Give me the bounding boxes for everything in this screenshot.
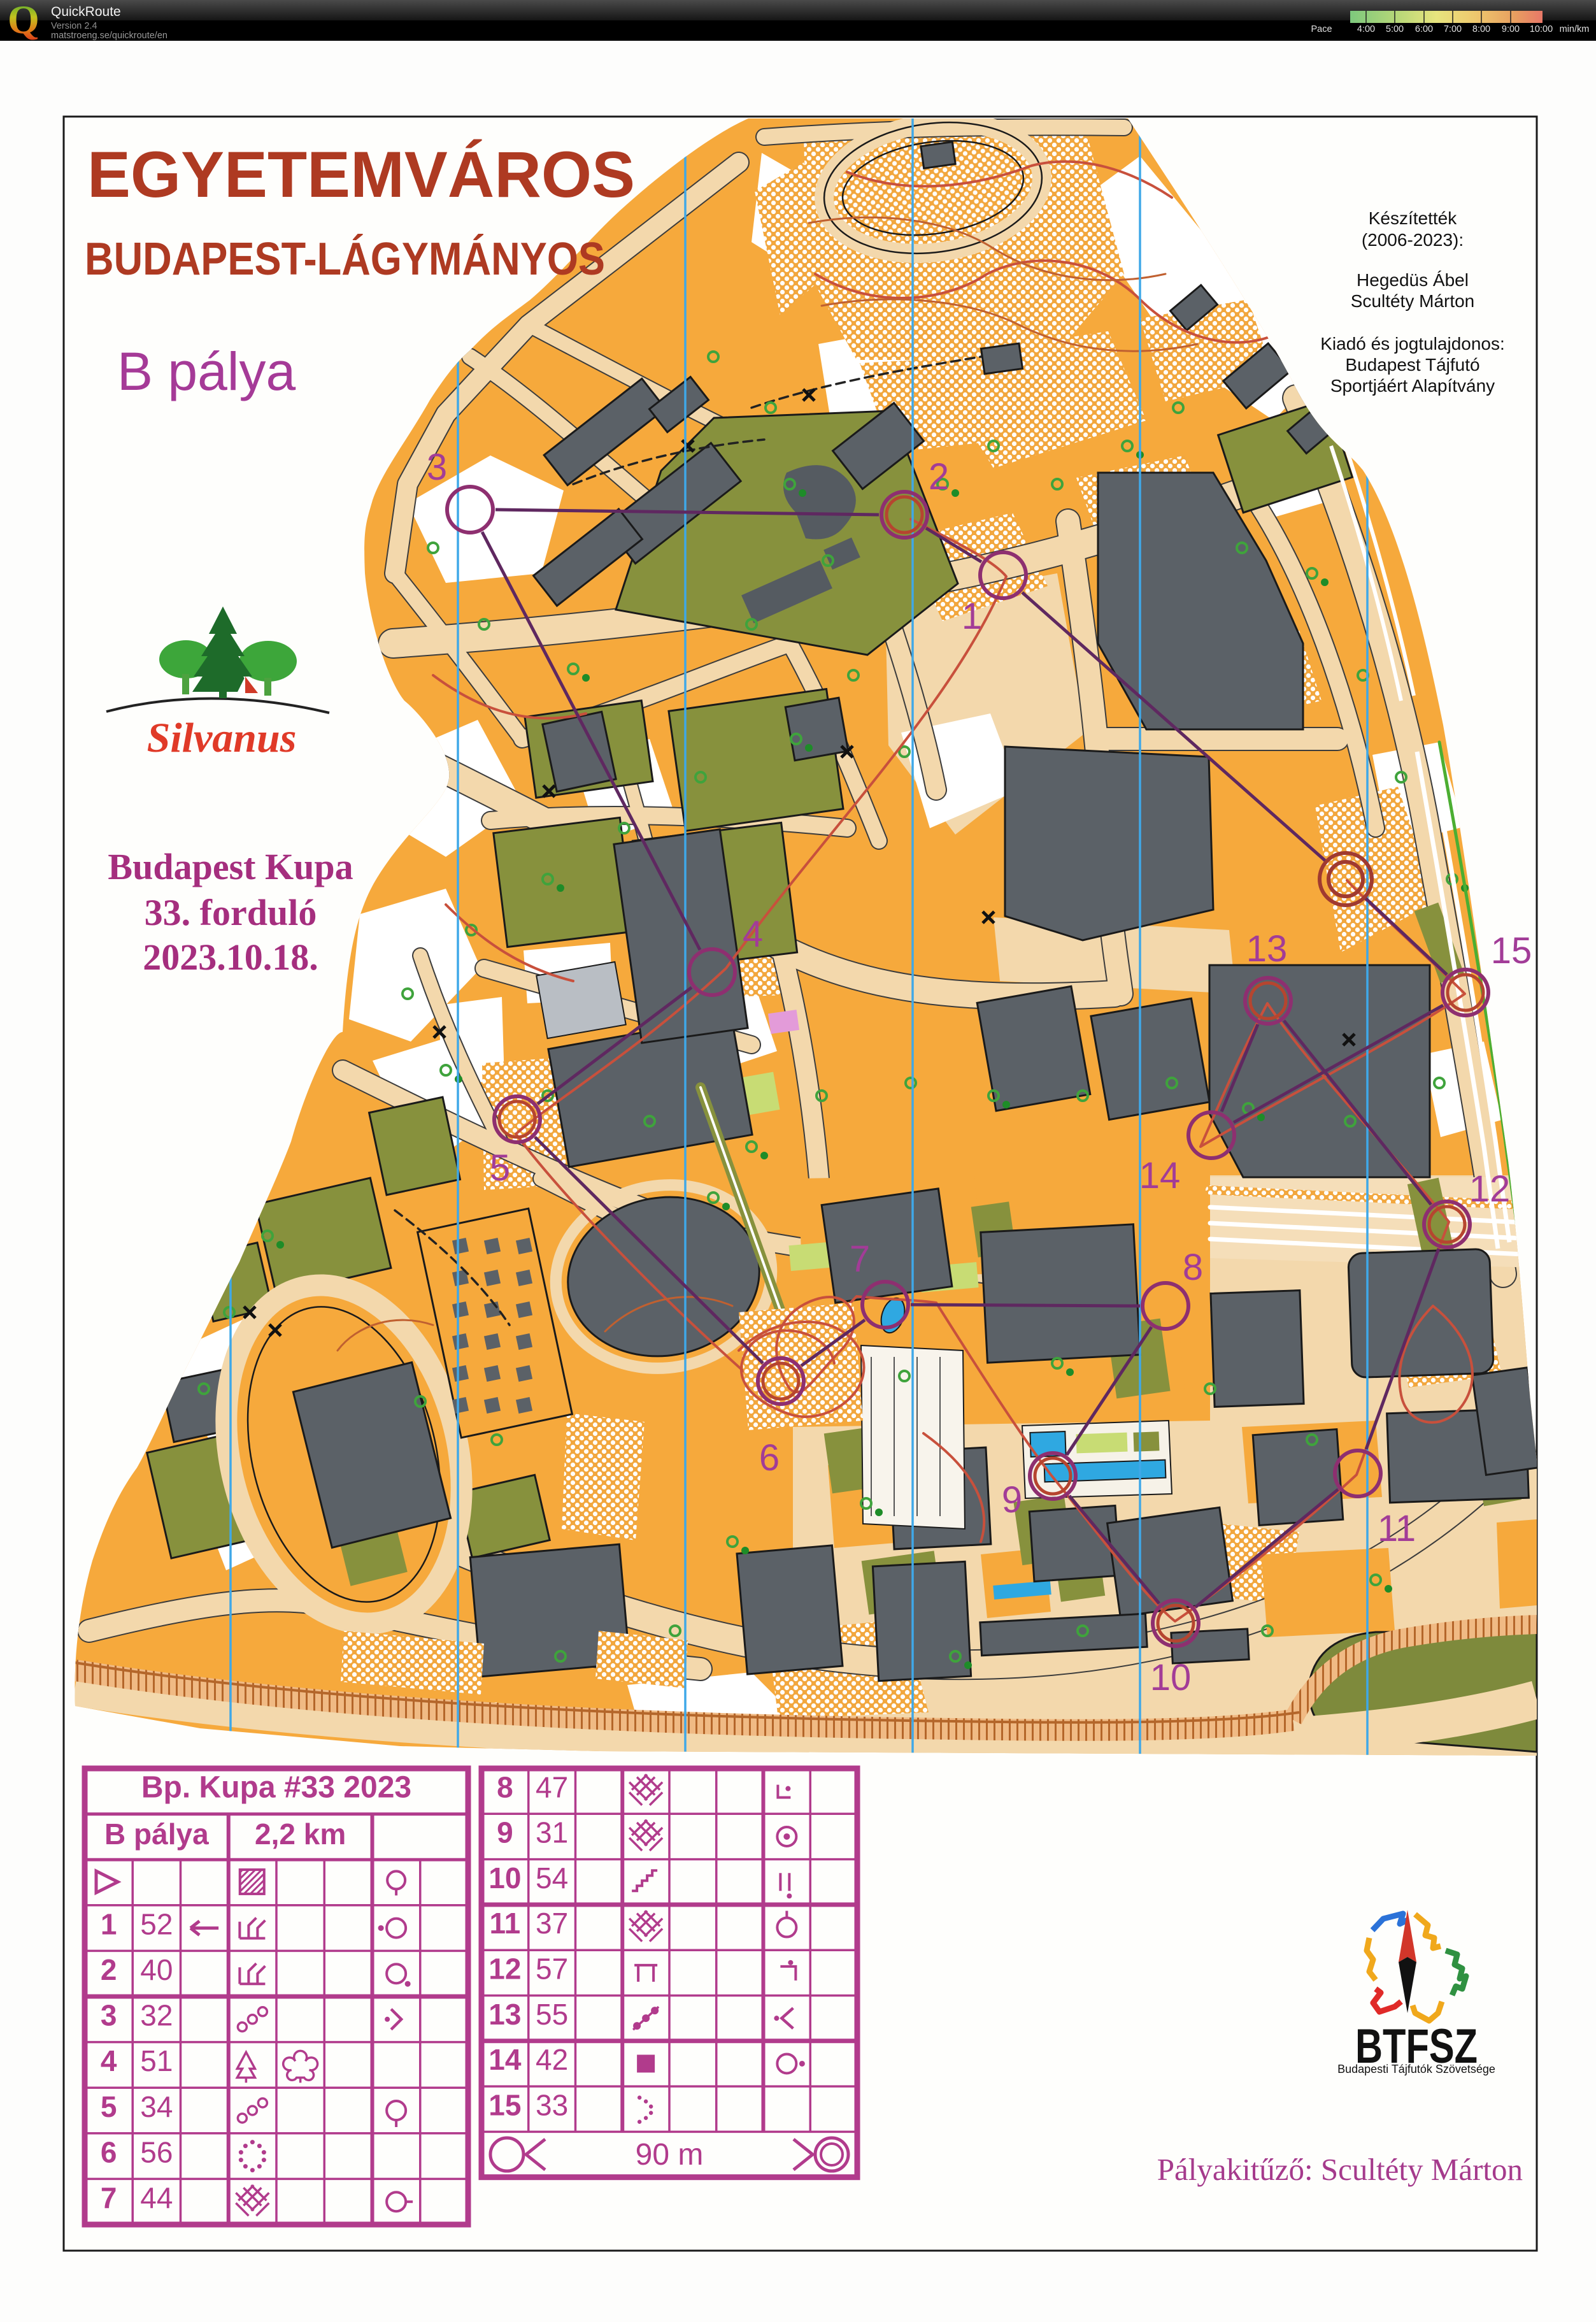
svg-text:Sportjáért Alapítvány: Sportjáért Alapítvány (1330, 376, 1495, 396)
svg-text:14: 14 (1139, 1155, 1181, 1196)
svg-text:9: 9 (497, 1816, 513, 1849)
svg-text:13: 13 (488, 1998, 521, 2031)
svg-text:Hegedüs Ábel: Hegedüs Ábel (1357, 270, 1469, 290)
svg-text:9: 9 (1002, 1479, 1022, 1521)
svg-text:6: 6 (759, 1437, 780, 1479)
svg-text:B pálya: B pálya (117, 341, 296, 401)
svg-text:32: 32 (140, 1999, 173, 2032)
svg-text:11: 11 (490, 1907, 521, 1940)
svg-text:6:00: 6:00 (1415, 24, 1433, 34)
svg-text:(2006-2023):: (2006-2023): (1362, 230, 1464, 250)
svg-text:51: 51 (140, 2044, 173, 2077)
svg-text:10: 10 (1150, 1657, 1192, 1698)
svg-text:4: 4 (101, 2044, 117, 2077)
svg-text:7:00: 7:00 (1444, 24, 1462, 34)
svg-text:54: 54 (536, 1861, 568, 1895)
svg-text:Scultéty Márton: Scultéty Márton (1351, 291, 1475, 311)
svg-text:3: 3 (101, 1999, 117, 2032)
svg-text:1: 1 (101, 1907, 117, 1940)
svg-text:Budapest Tájfutó: Budapest Tájfutó (1345, 355, 1479, 375)
svg-text:2,2 km: 2,2 km (255, 1817, 346, 1851)
svg-text:33: 33 (536, 2088, 568, 2121)
svg-text:12: 12 (1469, 1168, 1511, 1210)
svg-text:QuickRoute: QuickRoute (51, 4, 121, 19)
svg-text:Pályakitűző: Scultéty Márton: Pályakitűző: Scultéty Márton (1157, 2152, 1523, 2187)
svg-text:Bp. Kupa #33 2023: Bp. Kupa #33 2023 (141, 1771, 411, 1805)
svg-text:42: 42 (536, 2043, 568, 2076)
svg-text:8: 8 (497, 1770, 513, 1803)
svg-text:9:00: 9:00 (1502, 24, 1520, 34)
svg-text:Kiadó és jogtulajdonos:: Kiadó és jogtulajdonos: (1320, 334, 1505, 354)
svg-text:57: 57 (536, 1953, 568, 1986)
svg-text:min/km: min/km (1560, 24, 1590, 34)
svg-text:2023.10.18.: 2023.10.18. (143, 936, 318, 978)
svg-text:40: 40 (140, 1953, 173, 1986)
svg-text:44: 44 (140, 2181, 173, 2214)
svg-text:7: 7 (850, 1238, 870, 1280)
svg-text:Silvanus: Silvanus (147, 715, 297, 761)
svg-text:33. forduló: 33. forduló (145, 892, 317, 933)
svg-text:Version 2.4: Version 2.4 (51, 21, 97, 31)
svg-text:6: 6 (101, 2135, 117, 2168)
svg-text:Budapesti Tájfutók Szövetsége: Budapesti Tájfutók Szövetsége (1337, 2063, 1495, 2075)
svg-text:2: 2 (929, 456, 949, 498)
svg-text:47: 47 (536, 1770, 568, 1803)
svg-text:55: 55 (536, 1998, 568, 2031)
svg-text:31: 31 (536, 1816, 568, 1849)
svg-text:11: 11 (1378, 1508, 1416, 1549)
svg-text:5: 5 (490, 1147, 510, 1189)
svg-text:Q: Q (8, 0, 39, 42)
svg-text:5:00: 5:00 (1386, 24, 1404, 34)
svg-text:4:00: 4:00 (1357, 24, 1375, 34)
svg-text:2: 2 (101, 1953, 117, 1986)
svg-text:3: 3 (427, 447, 447, 488)
svg-text:1: 1 (962, 596, 982, 637)
svg-text:15: 15 (1491, 930, 1532, 971)
svg-text:10:00: 10:00 (1530, 24, 1553, 34)
svg-text:BUDAPEST-LÁGYMÁNYOS: BUDAPEST-LÁGYMÁNYOS (85, 234, 605, 285)
svg-text:matstroeng.se/quickroute/en: matstroeng.se/quickroute/en (51, 31, 167, 41)
svg-text:EGYETEMVÁROS: EGYETEMVÁROS (87, 138, 635, 211)
svg-text:Készítették: Készítették (1369, 208, 1458, 228)
svg-text:B pálya: B pálya (104, 1817, 209, 1851)
svg-text:8:00: 8:00 (1472, 24, 1490, 34)
svg-text:13: 13 (1246, 928, 1288, 970)
svg-text:52: 52 (140, 1907, 173, 1940)
svg-text:10: 10 (488, 1861, 521, 1895)
svg-text:15: 15 (488, 2088, 521, 2121)
svg-text:90 m: 90 m (636, 2138, 704, 2172)
svg-text:Pace: Pace (1311, 24, 1332, 34)
svg-text:8: 8 (1183, 1247, 1203, 1288)
svg-text:Budapest Kupa: Budapest Kupa (108, 846, 353, 887)
svg-text:4: 4 (743, 914, 763, 955)
svg-text:37: 37 (536, 1907, 568, 1940)
svg-text:34: 34 (140, 2090, 173, 2123)
svg-text:7: 7 (101, 2181, 117, 2214)
svg-text:12: 12 (488, 1953, 521, 1986)
svg-text:56: 56 (140, 2135, 173, 2168)
svg-text:14: 14 (488, 2043, 522, 2076)
svg-text:5: 5 (101, 2090, 117, 2123)
